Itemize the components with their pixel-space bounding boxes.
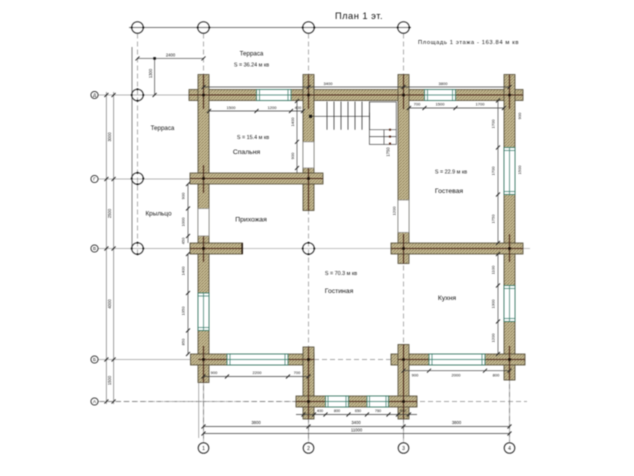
svg-text:700: 700 (294, 370, 301, 375)
svg-text:800: 800 (493, 372, 500, 377)
svg-text:3000: 3000 (107, 132, 112, 142)
svg-text:1300: 1300 (491, 299, 496, 309)
svg-text:1700: 1700 (476, 102, 486, 107)
svg-text:2: 2 (307, 446, 310, 452)
svg-text:450: 450 (181, 237, 186, 244)
svg-text:1500: 1500 (436, 102, 446, 107)
svg-text:900: 900 (211, 370, 218, 375)
svg-text:В: В (93, 246, 96, 251)
svg-text:1000: 1000 (181, 217, 186, 227)
svg-text:Б: Б (93, 357, 96, 362)
svg-text:900: 900 (290, 152, 295, 159)
svg-text:2000: 2000 (452, 372, 462, 377)
svg-text:2500: 2500 (107, 208, 112, 218)
svg-text:11000: 11000 (351, 427, 363, 432)
svg-text:S = 36.24 м кв: S = 36.24 м кв (234, 63, 269, 69)
svg-text:3: 3 (402, 446, 405, 452)
svg-text:400: 400 (295, 105, 302, 110)
svg-text:4: 4 (508, 446, 511, 452)
svg-text:1500: 1500 (227, 105, 237, 110)
svg-text:1700: 1700 (491, 119, 496, 129)
svg-text:Спальня: Спальня (233, 149, 261, 156)
svg-text:S = 22.9 м кв: S = 22.9 м кв (435, 170, 467, 176)
svg-text:1200: 1200 (491, 333, 496, 343)
svg-text:3800: 3800 (251, 420, 261, 425)
svg-text:4000: 4000 (107, 299, 112, 309)
svg-text:1100: 1100 (491, 265, 496, 274)
svg-text:1500: 1500 (517, 165, 522, 175)
svg-text:1300: 1300 (148, 68, 153, 78)
svg-text:Г: Г (93, 177, 96, 182)
svg-text:400: 400 (317, 409, 323, 413)
svg-text:1700: 1700 (491, 166, 496, 176)
svg-text:1750: 1750 (491, 214, 496, 224)
svg-text:Площадь 1 этажа - 163.84 м кв: Площадь 1 этажа - 163.84 м кв (418, 40, 519, 46)
svg-text:850: 850 (181, 338, 186, 345)
svg-text:1750: 1750 (386, 147, 391, 157)
svg-text:Прихожая: Прихожая (235, 217, 267, 224)
svg-text:760: 760 (375, 409, 381, 413)
svg-text:3800: 3800 (439, 81, 449, 86)
svg-text:1400: 1400 (290, 117, 295, 127)
svg-text:Кухня: Кухня (438, 295, 457, 302)
svg-text:2200: 2200 (253, 370, 263, 375)
svg-text:3400: 3400 (351, 420, 361, 425)
svg-text:400: 400 (400, 409, 406, 413)
svg-text:1350: 1350 (181, 306, 186, 316)
svg-text:1200: 1200 (392, 206, 397, 216)
svg-text:Терраса: Терраса (240, 51, 264, 58)
svg-text:План 1 эт.: План 1 эт. (335, 11, 383, 21)
svg-text:А: А (93, 399, 96, 404)
svg-text:S = 70.3 м кв: S = 70.3 м кв (325, 271, 357, 277)
svg-text:Д: Д (93, 93, 96, 98)
svg-text:Терраса: Терраса (151, 125, 175, 132)
svg-text:S = 15.4 м кв: S = 15.4 м кв (237, 135, 269, 141)
svg-text:3800: 3800 (452, 420, 462, 425)
svg-text:Гостевая: Гостевая (435, 188, 464, 195)
svg-text:Крыльцо: Крыльцо (145, 211, 172, 218)
svg-text:900: 900 (517, 112, 522, 119)
svg-text:1400: 1400 (181, 266, 186, 276)
svg-text:1: 1 (202, 446, 205, 452)
svg-text:650: 650 (355, 409, 361, 413)
svg-text:2400: 2400 (166, 53, 176, 58)
svg-text:1200: 1200 (268, 105, 278, 110)
svg-text:900: 900 (412, 372, 419, 377)
svg-text:Гостиная: Гостиная (325, 288, 354, 295)
svg-text:900: 900 (181, 192, 186, 199)
svg-text:1500: 1500 (107, 375, 112, 385)
svg-text:3400: 3400 (324, 81, 334, 86)
svg-text:800: 800 (334, 409, 340, 413)
svg-text:700: 700 (414, 102, 421, 107)
